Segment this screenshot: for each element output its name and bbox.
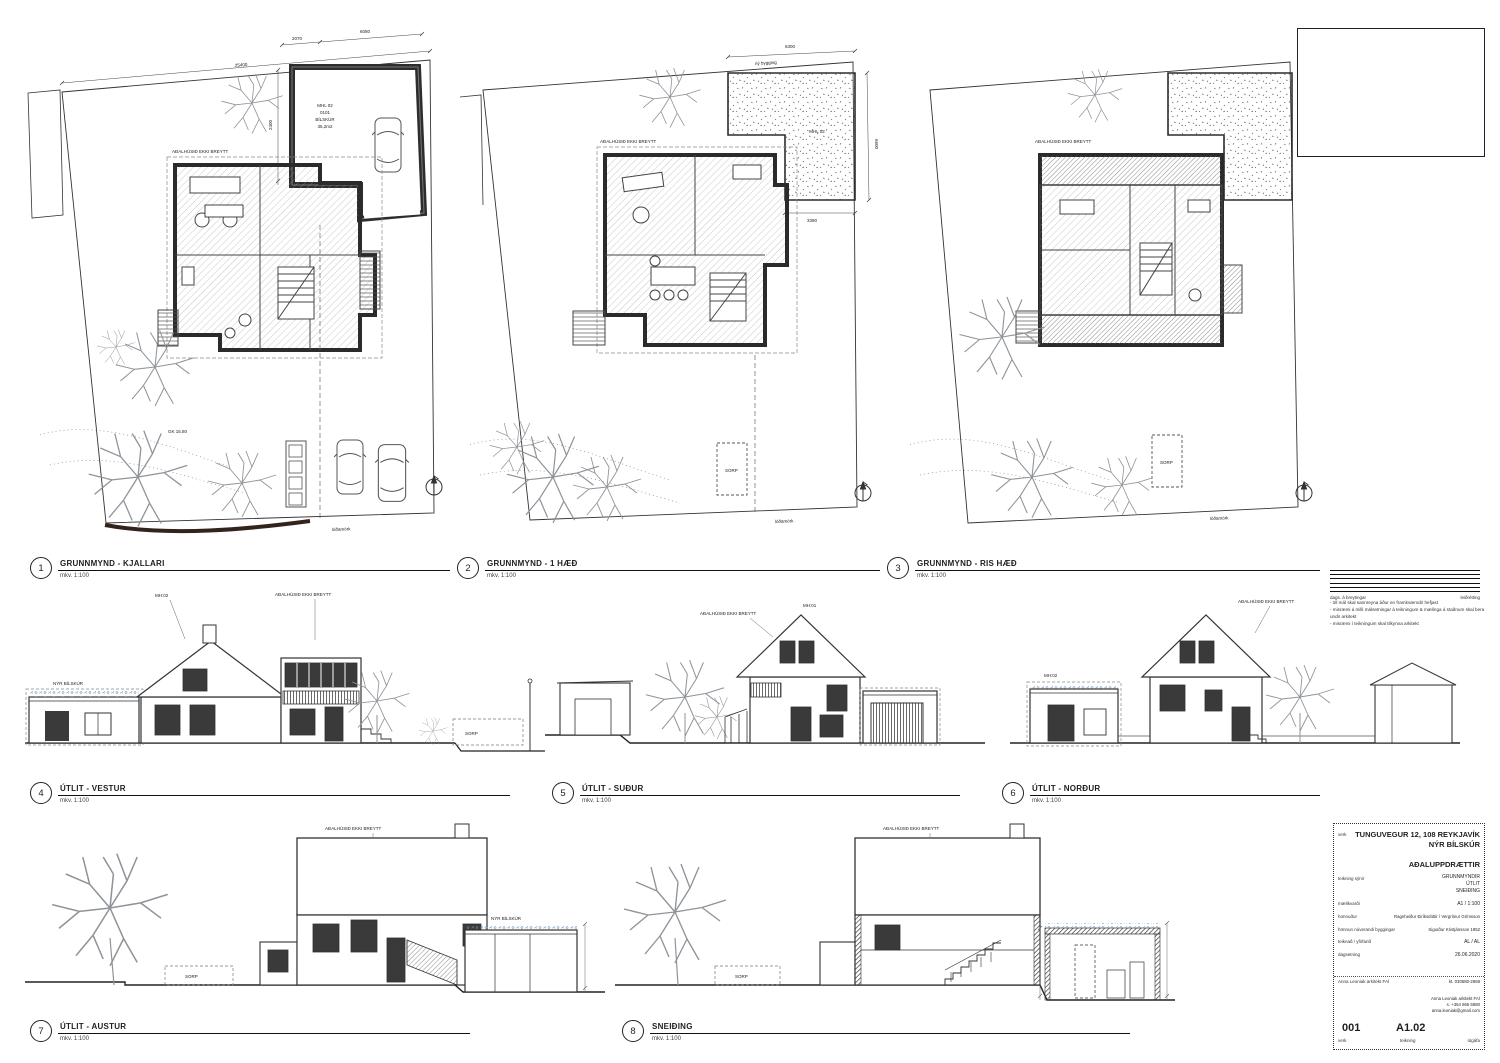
title-text: GRUNNMYND - RIS HÆÐ xyxy=(917,559,1017,568)
garage-mhl: MHL 02 xyxy=(317,103,333,108)
date-label: dagsetning xyxy=(1338,952,1360,957)
title-rule xyxy=(915,570,1320,571)
house-note: AÐALHÚSIÐ EKKI BREYTT xyxy=(700,610,757,616)
elev-vestur: SORP NÝR BÍLSKÚR MH:02 AÐALHÚSIÐ EKKI BR… xyxy=(25,585,545,785)
title-elev-6: 6 ÚTLIT - NORÐUR mkv. 1:100 xyxy=(1002,781,1320,813)
gk-level: GK 15.80 xyxy=(168,429,188,434)
title-rule xyxy=(580,795,960,796)
elev-austur: SORP NÝR BÍLSKÚR AÐALHÚSIÐ EKKI BREYTT xyxy=(25,820,605,1020)
neighbor-garage xyxy=(557,681,633,735)
empty-legend-box xyxy=(1297,28,1485,157)
sorp-label: SORP xyxy=(725,468,738,473)
title-scale: mkv. 1:100 xyxy=(582,798,611,804)
project-sub: NÝR BÍLSKÚR xyxy=(1429,840,1480,849)
yard xyxy=(470,355,755,513)
mh-label: MH:02 xyxy=(155,593,169,598)
title-number: 6 xyxy=(1002,782,1024,804)
drawing-sheet: 25400 2070 6080 2400 MHL 02 0101 BÍLSKÚR… xyxy=(0,0,1500,1063)
project-label: verk xyxy=(1338,832,1347,837)
firm-name-left: Anna Leoniak arkitekt FAÍ xyxy=(1338,979,1389,984)
garage-elev xyxy=(26,689,143,745)
orig-designer-value: Sigurður Kristjánsson 1952 xyxy=(1428,927,1480,932)
drawing-number: A1.02 xyxy=(1396,1022,1425,1034)
shows-3: SNEIÐING xyxy=(1456,888,1480,894)
dim-bottom: 3390 xyxy=(807,218,818,223)
title-text: SNEIÐING xyxy=(652,1022,693,1031)
main-house-plan xyxy=(1016,155,1242,345)
title-scale: mkv. 1:100 xyxy=(60,1036,89,1042)
house-note: AÐALHÚSIÐ EKKI BREYTT xyxy=(1035,138,1092,144)
title-text: ÚTLIT - VESTUR xyxy=(60,784,126,793)
drawn-value: AL / AL xyxy=(1464,939,1480,945)
house-note: AÐALHÚSIÐ EKKI BREYTT xyxy=(325,825,382,831)
title-scale: mkv. 1:100 xyxy=(60,798,89,804)
shows-2: ÚTLIT xyxy=(1466,881,1480,887)
roof-mhl: MHL 02 xyxy=(809,129,825,134)
dim-top1: 2070 xyxy=(292,36,303,41)
house-note: AÐALHÚSIÐ EKKI BREYTT xyxy=(172,148,229,154)
shows-1: GRUNNMYNDIR xyxy=(1442,874,1480,880)
garage-elev xyxy=(465,922,587,992)
date-value: 26.06.2020 xyxy=(1455,952,1480,958)
title-rule xyxy=(58,570,450,571)
north-arrow xyxy=(1296,482,1312,501)
scale-label: mælikvarði xyxy=(1338,901,1360,906)
title-rule xyxy=(58,1033,470,1034)
title-plan-1: 1 GRUNNMYND - KJALLARI mkv. 1:100 xyxy=(30,556,450,588)
title-scale: mkv. 1:100 xyxy=(60,573,89,579)
garage-room-no: 0101 xyxy=(320,110,331,115)
north-arrow xyxy=(426,476,442,495)
note-line: - misræmi á milli málsetningar á teiknin… xyxy=(1330,607,1495,621)
title-text: GRUNNMYND - 1 HÆÐ xyxy=(487,559,577,568)
contact-name: Anna Leoniak arkitekt FAÍ xyxy=(1431,996,1480,1001)
house-note: AÐALHÚSIÐ EKKI BREYTT xyxy=(883,825,940,831)
designer-value: Ragnheiður Eiríksdóttir / Vergrímur Grím… xyxy=(1394,914,1480,919)
trees xyxy=(1266,665,1334,743)
plan-1haed: MHL 02 6300 ný bygging 6600 3390 AÐALHÚS… xyxy=(455,15,885,555)
title-block: verk TUNGUVEGUR 12, 108 REYKJAVÍK NÝR BÍ… xyxy=(1333,823,1485,1050)
sorp-label: SORP xyxy=(465,731,478,736)
garage-elev xyxy=(860,688,940,745)
plan-ris: AÐALHÚSIÐ EKKI BREYTT SORP lóðamörk xyxy=(890,15,1330,555)
trees xyxy=(624,864,726,985)
title-number: 4 xyxy=(30,782,52,804)
title-scale: mkv. 1:100 xyxy=(487,573,516,579)
title-scale: mkv. 1:100 xyxy=(652,1036,681,1042)
doc-type: AÐALUPPDRÆTTIR xyxy=(1409,860,1480,869)
house-section xyxy=(820,824,1040,985)
house-elev xyxy=(725,615,865,743)
issue-label: útgáfa xyxy=(1467,1038,1480,1043)
garage-elev xyxy=(1027,682,1121,746)
title-elev-7: 7 ÚTLIT - AUSTUR mkv. 1:100 xyxy=(30,1019,470,1051)
north-arrow xyxy=(855,482,871,501)
house-elev xyxy=(1142,615,1270,743)
title-text: ÚTLIT - AUSTUR xyxy=(60,1022,126,1031)
title-text: ÚTLIT - NORÐUR xyxy=(1032,784,1100,793)
sneiding: SORP AÐALHÚSIÐ EKKI BREYTT xyxy=(615,820,1175,1020)
title-number: 3 xyxy=(887,557,909,579)
yard xyxy=(910,435,1182,503)
designer-label: hönnuður xyxy=(1338,914,1357,919)
drawing-number-label: teikning xyxy=(1400,1038,1416,1043)
scale-value: A1 / 1:100 xyxy=(1457,901,1480,907)
title-plan-3: 3 GRUNNMYND - RIS HÆÐ mkv. 1:100 xyxy=(887,556,1320,588)
sorp-box xyxy=(165,966,233,985)
title-text: GRUNNMYND - KJALLARI xyxy=(60,559,165,568)
title-number: 8 xyxy=(622,1020,644,1042)
house-note: AÐALHÚSIÐ EKKI BREYTT xyxy=(275,591,332,597)
lot-line-label: lóðamörk xyxy=(1210,514,1229,521)
orig-designer-label: hönnun núverandi byggingar xyxy=(1338,927,1395,932)
main-house-plan xyxy=(158,157,382,358)
title-scale: mkv. 1:100 xyxy=(917,573,946,579)
shows-label: teikning sýnir xyxy=(1338,876,1364,881)
title-elev-5: 5 ÚTLIT - SUÐUR mkv. 1:100 xyxy=(552,781,960,813)
sorp-label: SORP xyxy=(1160,460,1173,465)
trees xyxy=(52,854,168,985)
title-scale: mkv. 1:100 xyxy=(1032,798,1061,804)
firm-id: kt. 030580-2869 xyxy=(1449,979,1480,984)
note-line: - misræmi í teikningum skal tilkynna ark… xyxy=(1330,621,1495,628)
general-notes: - öll mál skal sannreyna áður en framkvæ… xyxy=(1330,600,1495,628)
title-number: 2 xyxy=(457,557,479,579)
sorp-label: SORP xyxy=(185,974,198,979)
dim-right: 6600 xyxy=(874,139,879,150)
title-elev-8: 8 SNEIÐING mkv. 1:100 xyxy=(622,1019,1130,1051)
house-note: AÐALHÚSIÐ EKKI BREYTT xyxy=(600,138,657,144)
ny-bygging: ný bygging xyxy=(755,60,777,66)
title-number: 7 xyxy=(30,1020,52,1042)
title-rule xyxy=(485,570,880,571)
title-number: 5 xyxy=(552,782,574,804)
title-text: ÚTLIT - SUÐUR xyxy=(582,784,643,793)
house-elev xyxy=(260,824,487,985)
garage-section xyxy=(1038,921,1169,1000)
sorp-label: SORP xyxy=(735,974,748,979)
yard-elev xyxy=(345,671,532,751)
revision-table: dags. á breytingar leiðrétting xyxy=(1330,570,1480,600)
main-house-plan xyxy=(573,147,797,353)
garage-area: 35,2m2 xyxy=(317,124,333,129)
project-name: TUNGUVEGUR 12, 108 REYKJAVÍK xyxy=(1355,830,1480,839)
mh-label: MH:02 xyxy=(1044,673,1058,678)
sheet-number: 001 xyxy=(1342,1022,1360,1034)
mh-label: MH:01 xyxy=(803,603,817,608)
drawn-label: teiknað / yfirfarið xyxy=(1338,939,1371,944)
title-plan-2: 2 GRUNNMYND - 1 HÆÐ mkv. 1:100 xyxy=(457,556,880,588)
lot-line-label: lóðamörk xyxy=(775,517,794,524)
note-line: - öll mál skal sannreyna áður en framkvæ… xyxy=(1330,600,1495,607)
title-elev-4: 4 ÚTLIT - VESTUR mkv. 1:100 xyxy=(30,781,510,813)
dim-top2: 6080 xyxy=(360,29,371,34)
title-rule xyxy=(650,1033,1130,1034)
title-rule xyxy=(1030,795,1320,796)
lot-line-label: lóðamörk xyxy=(332,525,351,532)
contact-phone: s. +354 865 5880 xyxy=(1447,1002,1480,1007)
bilskur-label: NÝR BÍLSKÚR xyxy=(53,680,84,686)
far-garage xyxy=(1370,663,1456,743)
title-rule xyxy=(58,795,510,796)
dim-left: 2400 xyxy=(268,119,273,130)
sheet-number-label: verk xyxy=(1338,1038,1347,1043)
plan-kjallari: 25400 2070 6080 2400 MHL 02 0101 BÍLSKÚR… xyxy=(20,15,460,555)
elev-sudur: AÐALHÚSIÐ EKKI BREYTT MH:01 xyxy=(545,585,985,785)
house-note: AÐALHÚSIÐ EKKI BREYTT xyxy=(1238,598,1295,604)
bilskur-label: NÝR BÍLSKÚR xyxy=(491,915,522,921)
dim-top: 6300 xyxy=(785,44,796,49)
title-number: 1 xyxy=(30,557,52,579)
house-elev xyxy=(137,625,391,743)
garage-room-name: BÍLSKÚR xyxy=(315,116,335,122)
contact-email: anna.leoniak@gmail.com xyxy=(1432,1008,1480,1013)
